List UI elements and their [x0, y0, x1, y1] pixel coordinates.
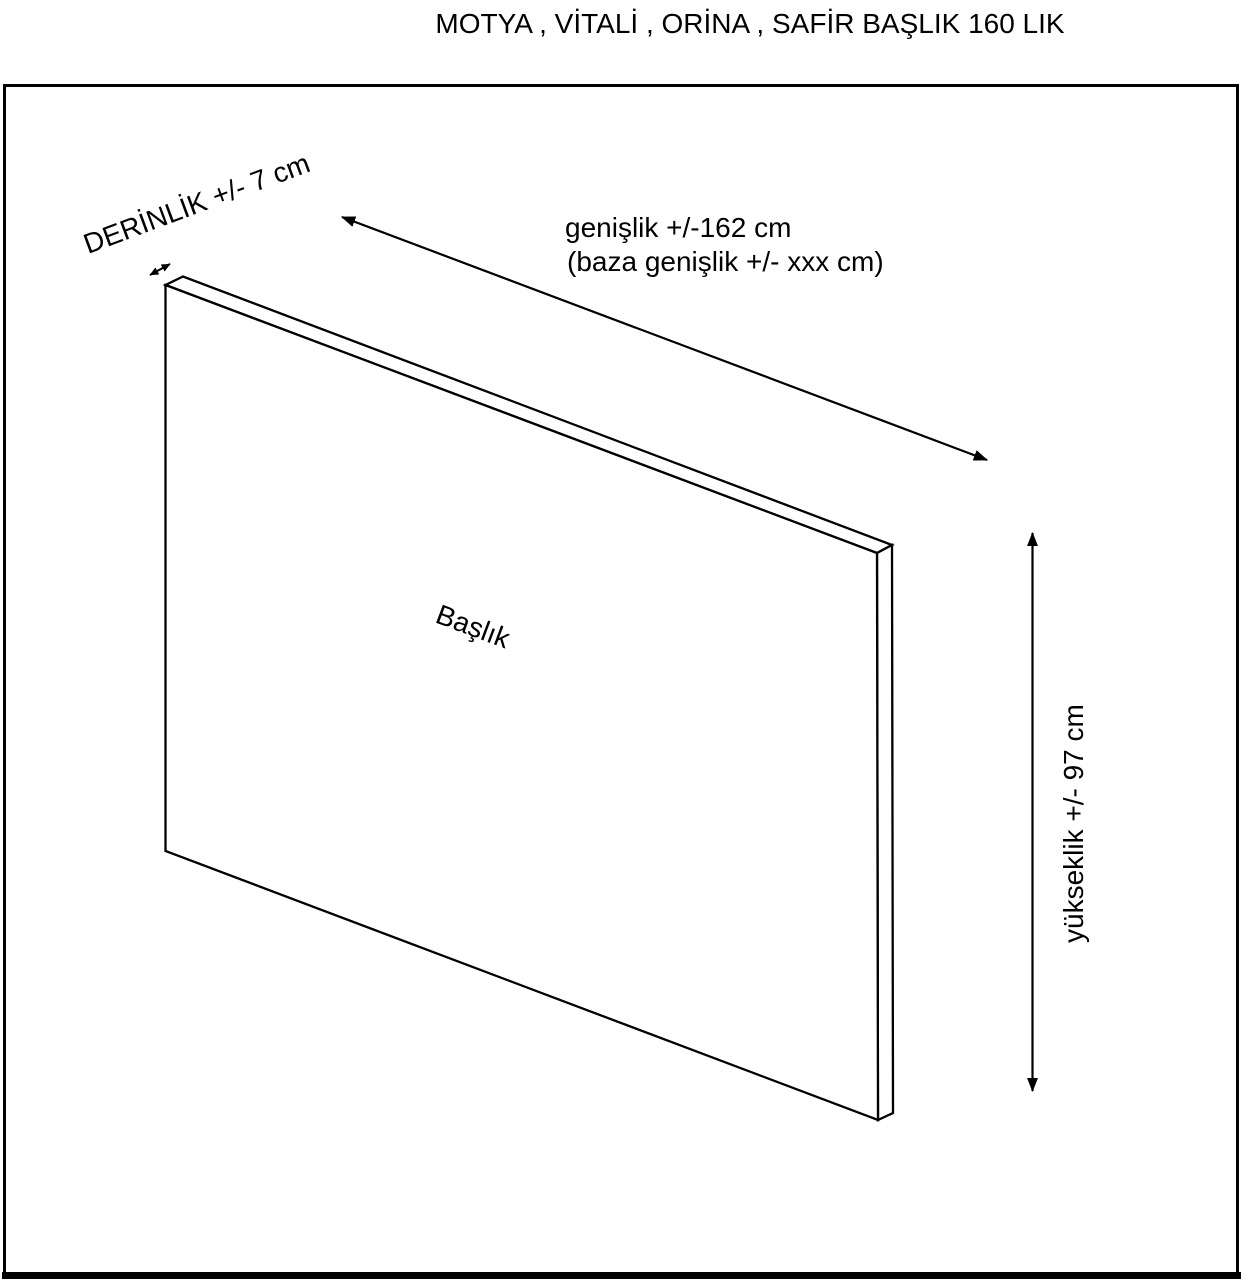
- drawing-title: MOTYA , VİTALİ , ORİNA , SAFİR BAŞLIK 16…: [435, 8, 1065, 39]
- technical-drawing-page: MOTYA , VİTALİ , ORİNA , SAFİR BAŞLIK 16…: [0, 0, 1243, 1280]
- depth-dimension-arrow: [150, 264, 170, 275]
- depth-dimension-label: DERİNLİK +/- 7 cm: [79, 147, 314, 259]
- diagram-canvas: MOTYA , VİTALİ , ORİNA , SAFİR BAŞLIK 16…: [0, 0, 1243, 1280]
- headboard-panel: [166, 277, 894, 1121]
- headboard-side-face: [877, 545, 893, 1120]
- width-dimension-label-line1: genişlik +/-162 cm: [565, 212, 791, 243]
- width-dimension-label-line2: (baza genişlik +/- xxx cm): [567, 246, 884, 277]
- height-dimension-label: yükseklik +/- 97 cm: [1058, 704, 1089, 943]
